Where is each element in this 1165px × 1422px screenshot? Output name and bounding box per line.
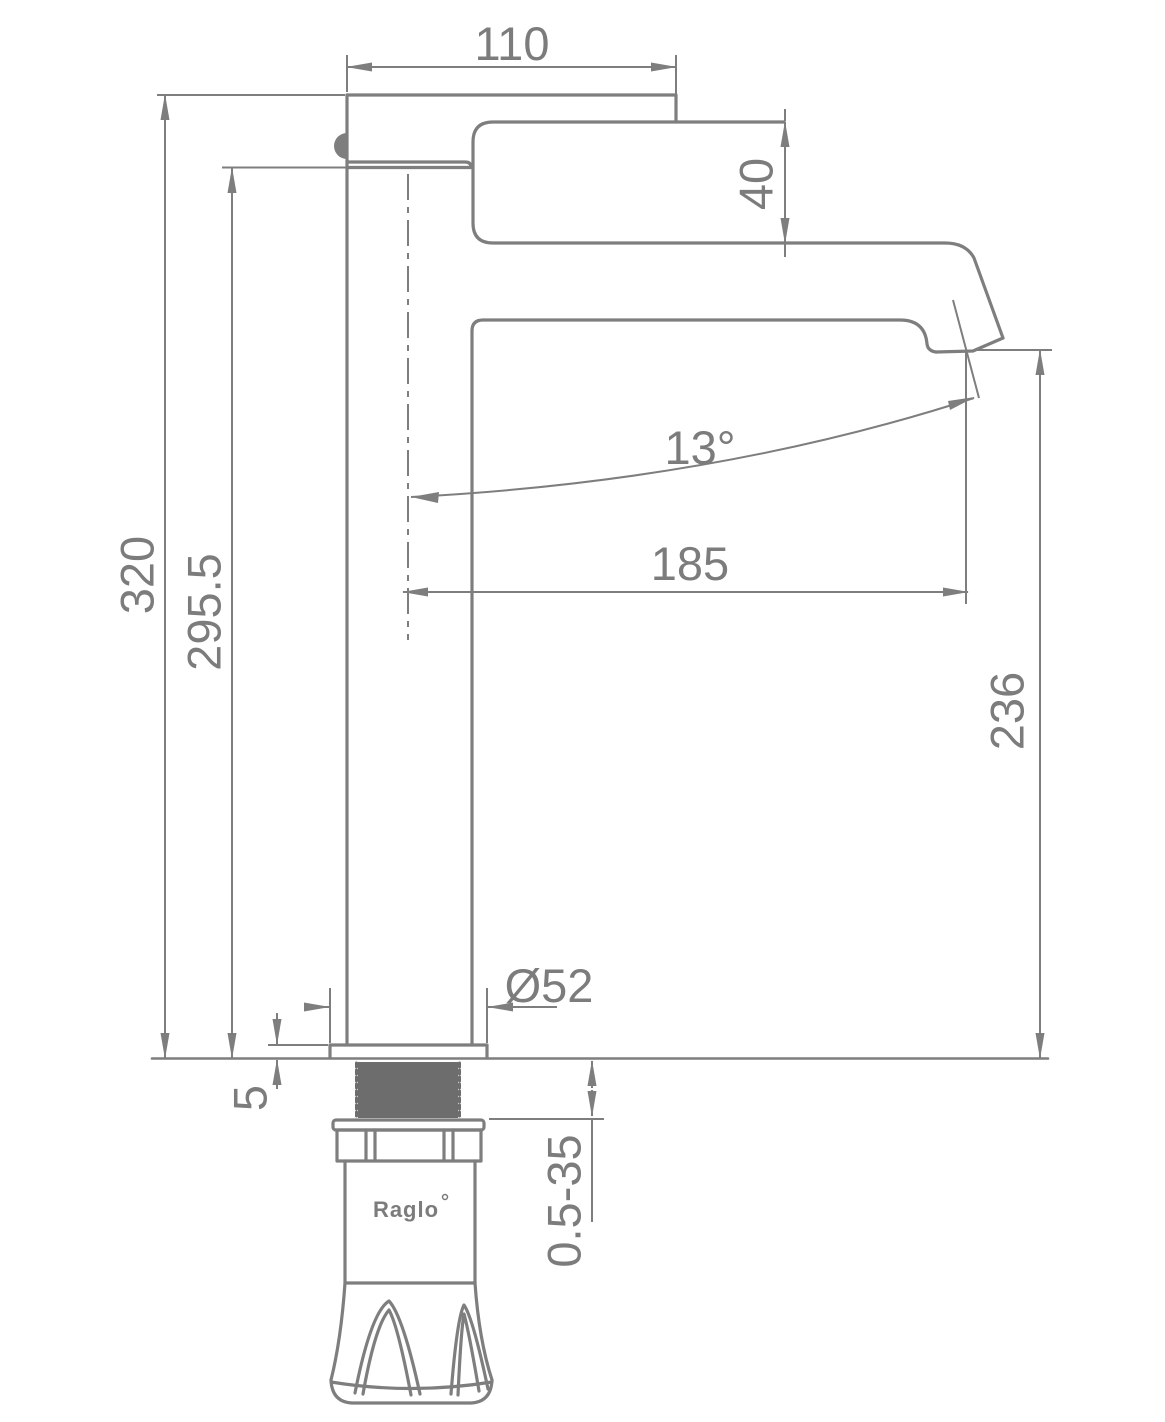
mounting-nut-body [337,1130,481,1161]
brand-name-label: Raglo [373,1197,439,1222]
column-top-face [348,162,471,168]
dim-label-handle-top-width: 110 [475,17,550,70]
brand-logo: Raglo [373,1195,448,1223]
dim-label-total-height: 320 [111,536,164,614]
faucet-technical-drawing: 110 40 13° 185 320 295.5 236 Ø52 5 0.5-3… [0,0,1165,1422]
angle-arrow-right [948,397,975,410]
dim-label-plate-thickness: 5 [224,1085,277,1111]
dimension-lines [165,67,1040,1222]
dim-label-spout-outlet-height: 236 [981,672,1034,750]
lever-pivot-icon [334,133,347,159]
threaded-shank [358,1062,458,1118]
lever-handle [347,95,676,122]
handle-body [473,122,1003,338]
angle-arrow-left [411,492,439,503]
dim-label-spout-reach: 185 [651,537,729,590]
dim-label-spout-angle: 13° [664,421,735,474]
dimension-labels: 110 40 13° 185 320 295.5 236 Ø52 5 0.5-3… [111,17,1034,1268]
deck-plate [330,1045,487,1058]
dim-label-handle-body-height: 40 [730,158,783,210]
brand-trademark-icon [443,1195,448,1200]
dim-label-base-diameter: Ø52 [505,959,594,1012]
wing-petal-left [355,1301,420,1395]
mounting-nut-slots [366,1130,453,1161]
dim-label-body-height: 295.5 [178,553,231,671]
faucet-outline [152,95,1048,1403]
dim-label-mounting-range: 0.5-35 [538,1134,591,1267]
spout-underside [472,320,936,352]
supply-body [345,1161,475,1283]
extension-lines [157,55,1052,1119]
technical-drawing-sheet: 110 40 13° 185 320 295.5 236 Ø52 5 0.5-3… [0,0,1165,1422]
